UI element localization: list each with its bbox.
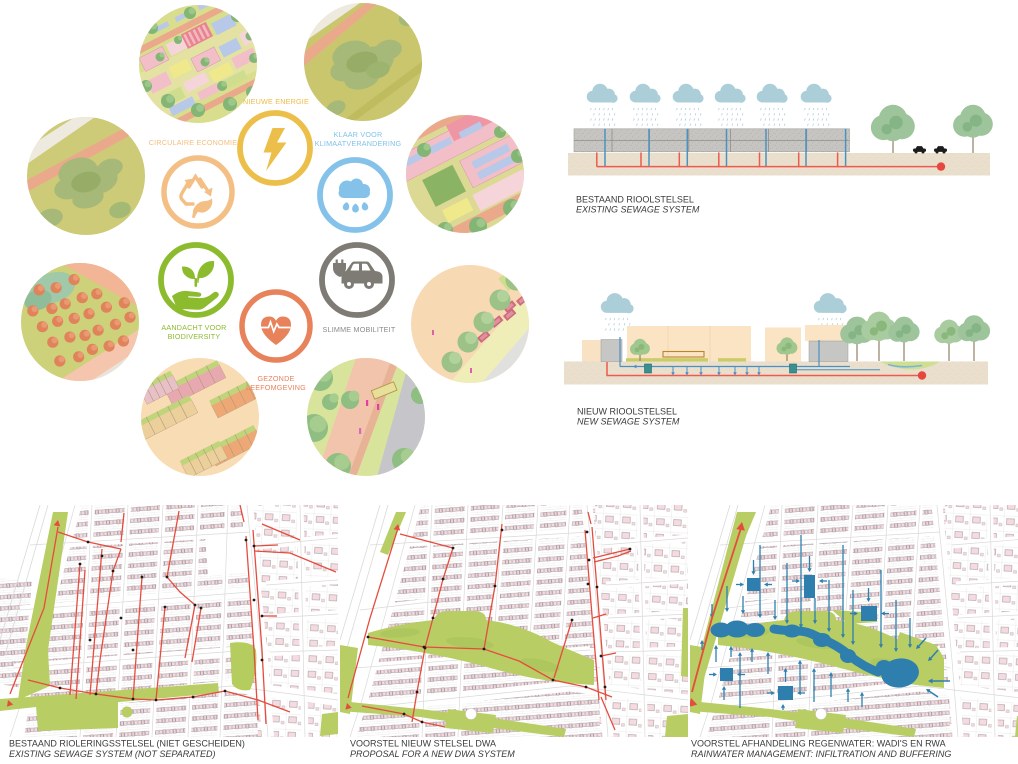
svg-text:NIEUW RIOOLSTELSEL: NIEUW RIOOLSTELSEL [577, 407, 677, 417]
svg-text:CIRCULAIRE ECONOMIE: CIRCULAIRE ECONOMIE [149, 138, 237, 147]
svg-text:GEZONDE: GEZONDE [258, 374, 295, 383]
svg-text:RAINWATER MANAGEMENT: INFILTRA: RAINWATER MANAGEMENT: INFILTRATION AND B… [691, 749, 951, 759]
svg-text:NEW SEWAGE SYSTEM: NEW SEWAGE SYSTEM [577, 416, 680, 426]
svg-text:EXISTING SEWAGE SYSTEM: EXISTING SEWAGE SYSTEM [576, 204, 700, 214]
svg-text:PROPOSAL FOR A NEW DWA SYSTEM: PROPOSAL FOR A NEW DWA SYSTEM [350, 749, 515, 759]
svg-text:AANDACHT VOOR: AANDACHT VOOR [161, 323, 226, 332]
svg-text:LEEFOMGEVING: LEEFOMGEVING [246, 383, 306, 392]
svg-text:SLIMME MOBILITEIT: SLIMME MOBILITEIT [323, 325, 396, 334]
svg-text:VOORSTEL AFHANDELING REGENWATE: VOORSTEL AFHANDELING REGENWATER: WADI'S … [691, 739, 946, 749]
svg-text:VOORSTEL NIEUW STELSEL DWA: VOORSTEL NIEUW STELSEL DWA [350, 739, 496, 749]
svg-text:KLIMAATVERANDERING: KLIMAATVERANDERING [315, 139, 402, 148]
svg-text:KLAAR VOOR: KLAAR VOOR [334, 130, 383, 139]
svg-text:BIODIVERSITY: BIODIVERSITY [168, 332, 221, 341]
svg-text:EXISTING SEWAGE SYSTEM (NOT SE: EXISTING SEWAGE SYSTEM (NOT SEPARATED) [9, 749, 216, 759]
svg-text:BESTAAND RIOOLSTELSEL: BESTAAND RIOOLSTELSEL [576, 195, 694, 205]
svg-text:BESTAAND RIOLERINGSSTELSEL (NI: BESTAAND RIOLERINGSSTELSEL (NIET GESCHEI… [9, 739, 245, 749]
svg-text:NIEUWE ENERGIE: NIEUWE ENERGIE [243, 97, 309, 106]
